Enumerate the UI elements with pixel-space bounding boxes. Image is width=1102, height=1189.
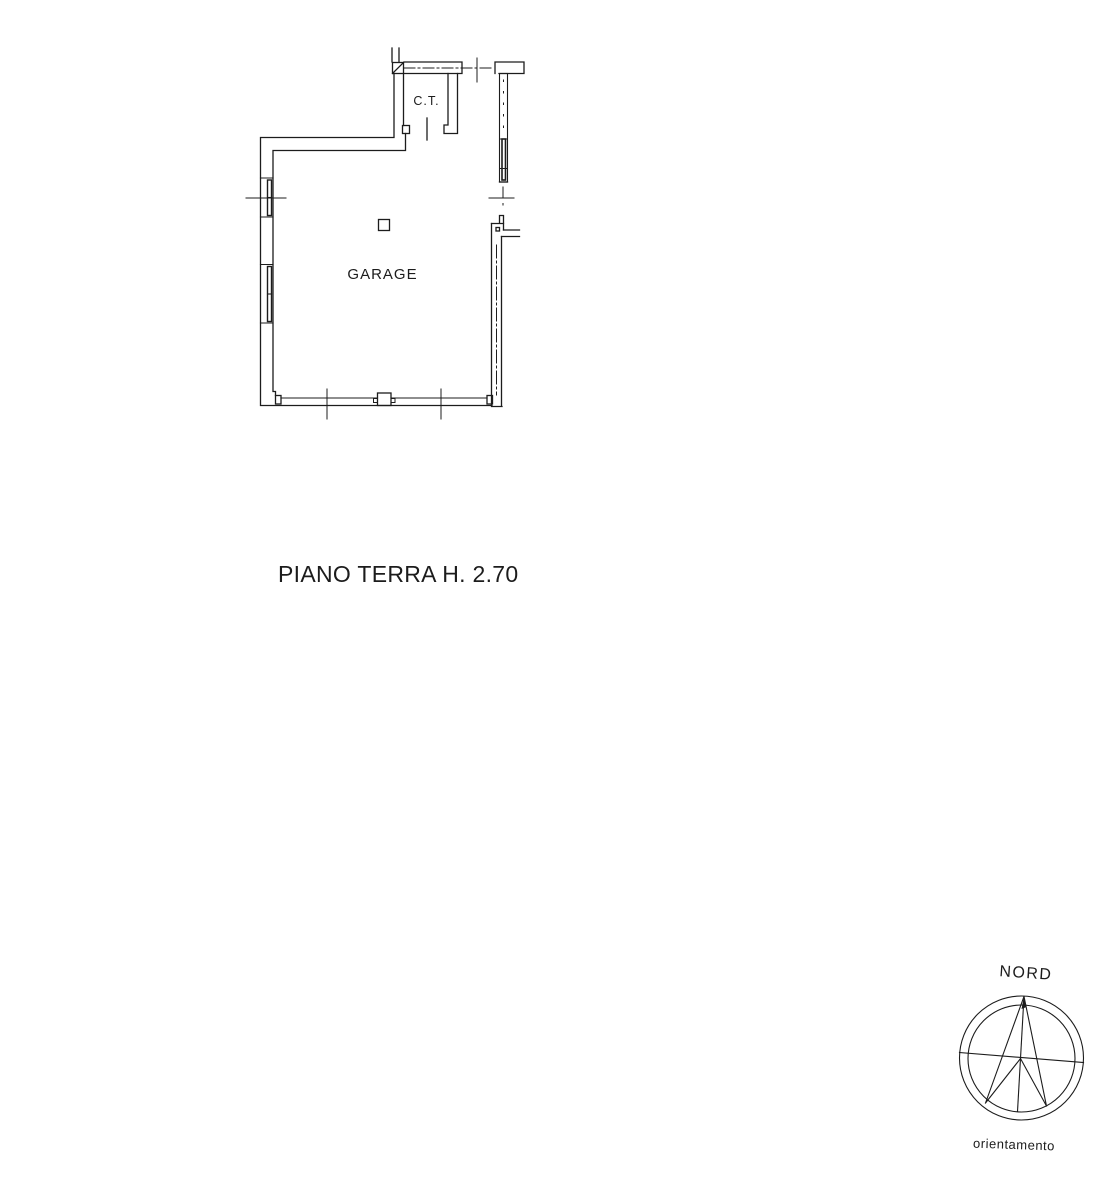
compass-caption: orientamento xyxy=(973,1136,1055,1154)
garage-right-wall xyxy=(492,216,520,407)
left-window-lower xyxy=(261,265,274,324)
compass-north-line xyxy=(1018,997,1025,1112)
center-mark xyxy=(489,187,514,205)
compass-rose xyxy=(960,996,1084,1120)
garage-pillar xyxy=(379,220,390,231)
ct-room-walls xyxy=(392,48,493,140)
compass-north-label: NORD xyxy=(999,963,1053,984)
garage-label: GARAGE xyxy=(347,266,417,283)
floorplan-drawing: C.T. GARAGE PIANO TERRA H. 2.70 NORD ori… xyxy=(0,0,1102,1189)
ct-room-label: C.T. xyxy=(413,94,439,108)
top-right-wall xyxy=(477,58,524,82)
corner-box-diagonal xyxy=(393,63,404,74)
compass-inner-circle xyxy=(968,1005,1075,1112)
flue-lines xyxy=(392,48,399,62)
pilaster-dot xyxy=(496,228,500,232)
door-center-pillar xyxy=(378,393,392,406)
compass-star-lines xyxy=(986,997,1047,1107)
floor-caption: PIANO TERRA H. 2.70 xyxy=(278,561,518,587)
right-window-strip xyxy=(500,74,508,183)
garage-door xyxy=(276,389,493,419)
door-stop-left xyxy=(276,396,282,405)
floorplan-sheet: C.T. GARAGE PIANO TERRA H. 2.70 NORD ori… xyxy=(0,0,1102,1189)
ct-door-jamb-left xyxy=(403,126,410,134)
